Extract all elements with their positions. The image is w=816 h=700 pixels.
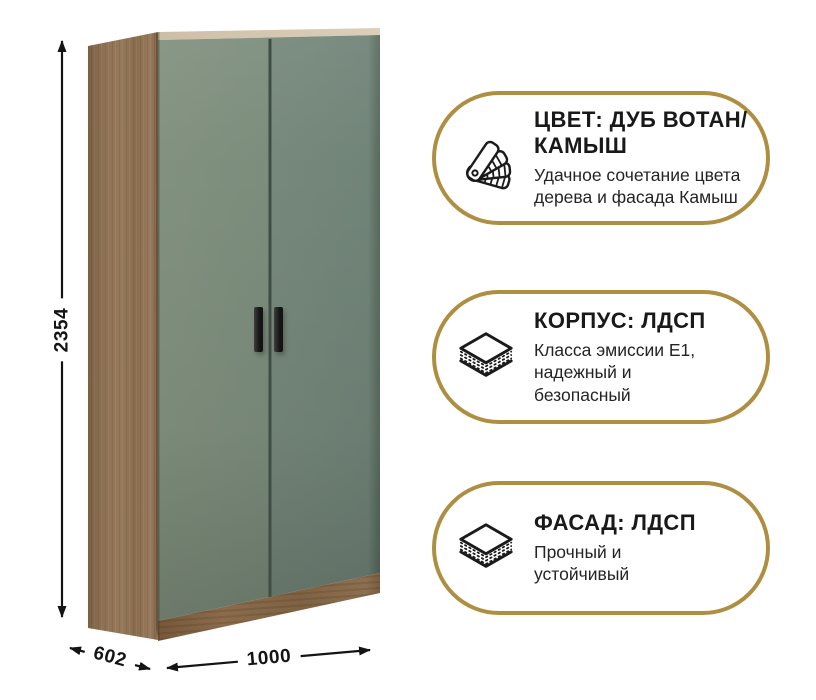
feature-badge-facade: ФАСАД: ЛДСП Прочный и устойчивый <box>432 481 770 615</box>
feature-badge-color: ЦВЕТ: ДУБ ВОТАН/ КАМЫШ Удачное сочетание… <box>432 91 770 225</box>
product-infographic: 2354 602 1000 <box>0 0 816 700</box>
feature-badge-body: КОРПУС: ЛДСП Класса эмиссии Е1, надежный… <box>432 290 770 424</box>
badge-text-block: КОРПУС: ЛДСП Класса эмиссии Е1, надежный… <box>534 308 748 406</box>
badge-description: Прочный и устойчивый <box>534 541 748 586</box>
left-door-handle <box>254 307 263 352</box>
layers-icon <box>454 511 518 585</box>
badge-description: Класса эмиссии Е1, надежный и безопасный <box>534 339 748 406</box>
badge-title: КОРПУС: ЛДСП <box>534 308 748 334</box>
width-dimension-label: 1000 <box>237 642 302 674</box>
right-door-handle <box>274 307 283 352</box>
badge-title: ЦВЕТ: ДУБ ВОТАН/ КАМЫШ <box>534 107 748 159</box>
badge-text-block: ФАСАД: ЛДСП Прочный и устойчивый <box>534 510 748 586</box>
layers-icon <box>454 320 518 394</box>
badge-title: ФАСАД: ЛДСП <box>534 510 748 536</box>
color-swatch-fan-icon <box>454 121 518 195</box>
height-dimension-label: 2354 <box>49 299 76 362</box>
badge-text-block: ЦВЕТ: ДУБ ВОТАН/ КАМЫШ Удачное сочетание… <box>534 107 748 209</box>
badge-description: Удачное сочетание цвета дерева и фасада … <box>534 164 748 209</box>
